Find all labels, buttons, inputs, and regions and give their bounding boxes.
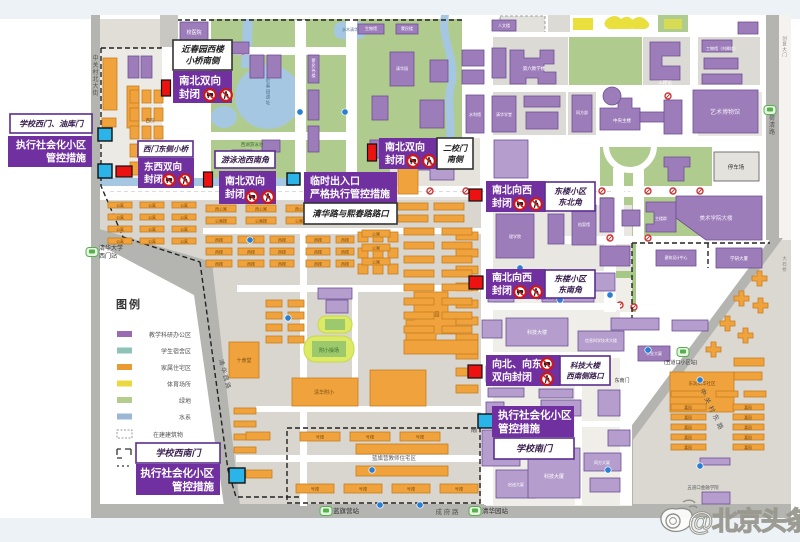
svg-text:意: 意 [782, 41, 787, 47]
svg-text:嘉园: 嘉园 [744, 415, 752, 420]
svg-text:附小操场: 附小操场 [319, 347, 339, 354]
svg-text:号楼: 号楼 [366, 434, 374, 441]
svg-text:(五道口小区站): (五道口小区站) [664, 359, 698, 366]
svg-text:科技大楼: 科技大楼 [570, 361, 601, 370]
svg-text:学生宿舍区: 学生宿舍区 [161, 348, 191, 356]
svg-text:清华学堂: 清华学堂 [496, 111, 512, 117]
svg-text:村: 村 [92, 68, 98, 76]
svg-text:启迪大厦: 启迪大厦 [508, 481, 524, 487]
svg-text:公寓楼: 公寓楼 [255, 218, 267, 224]
svg-text:向北、向东: 向北、向东 [492, 358, 542, 371]
svg-text:公寓: 公寓 [148, 203, 156, 208]
svg-text:号楼: 号楼 [455, 486, 463, 493]
svg-text:嘉园: 嘉园 [744, 435, 752, 440]
svg-text:体育场所: 体育场所 [167, 381, 191, 389]
svg-text:公寓: 公寓 [116, 215, 124, 220]
svg-text:家属住宅区: 家属住宅区 [161, 364, 191, 372]
svg-text:封闭: 封闭 [492, 284, 512, 297]
svg-text:绿地: 绿地 [179, 397, 191, 405]
svg-text:南北双向: 南北双向 [225, 175, 265, 188]
svg-text:艺术博物馆: 艺术博物馆 [710, 108, 740, 116]
svg-text:东南门: 东南门 [614, 377, 629, 384]
svg-text:主楼群: 主楼群 [655, 215, 667, 221]
svg-text:科技大厦: 科技大厦 [544, 473, 564, 480]
svg-text:西楼: 西楼 [215, 261, 223, 267]
svg-text:清华园: 清华园 [396, 65, 408, 71]
svg-text:第六教学楼: 第六教学楼 [523, 65, 546, 72]
svg-text:西院: 西院 [146, 117, 155, 124]
svg-text:公寓: 公寓 [116, 203, 124, 208]
svg-text:执行社会化小区: 执行社会化小区 [141, 466, 215, 479]
svg-text:东楼小区: 东楼小区 [554, 274, 588, 283]
svg-text:蒙民楼: 蒙民楼 [401, 25, 413, 31]
svg-text:南北双向: 南北双向 [385, 141, 425, 154]
svg-text:学校西门、油库门: 学校西门、油库门 [19, 118, 85, 128]
svg-text:西楼: 西楼 [215, 249, 223, 255]
svg-text:西楼: 西楼 [215, 237, 223, 243]
svg-text:大: 大 [92, 82, 98, 90]
svg-text:公寓: 公寓 [180, 239, 188, 244]
svg-text:号楼: 号楼 [416, 434, 424, 441]
svg-text:公寓: 公寓 [372, 259, 380, 265]
svg-text:人文楼: 人文楼 [498, 22, 510, 28]
svg-text:执行社会化小区: 执行社会化小区 [498, 408, 572, 421]
svg-text:嘉园: 嘉园 [684, 435, 692, 440]
svg-text:楼: 楼 [312, 72, 316, 78]
svg-text:公寓: 公寓 [372, 245, 380, 251]
svg-text:蓝旗营教师住宅区: 蓝旗营教师住宅区 [372, 454, 417, 462]
svg-text:清: 清 [769, 121, 775, 129]
svg-text:西公寓: 西公寓 [255, 206, 267, 212]
svg-text:址: 址 [266, 99, 271, 105]
svg-text:西门东侧小桥: 西门东侧小桥 [143, 145, 189, 154]
svg-text:嘉园: 嘉园 [684, 415, 692, 420]
svg-text:教学科研办公区: 教学科研办公区 [149, 331, 191, 339]
svg-text:科技大楼: 科技大楼 [527, 329, 547, 336]
svg-text:西楼: 西楼 [341, 249, 349, 255]
svg-text:严格执行管控措施: 严格执行管控措施 [309, 188, 390, 201]
svg-text:公寓: 公寓 [148, 239, 156, 244]
svg-text:号楼: 号楼 [359, 486, 367, 493]
svg-text:嘉园: 嘉园 [684, 425, 692, 430]
svg-text:十食堂: 十食堂 [236, 357, 251, 364]
svg-text:西楼: 西楼 [247, 261, 255, 267]
svg-text:公寓: 公寓 [180, 215, 188, 220]
svg-text:美术学院大楼: 美术学院大楼 [699, 214, 733, 222]
svg-text:封闭: 封闭 [492, 197, 512, 210]
svg-text:街: 街 [92, 89, 98, 97]
svg-text:执行社会化小区: 执行社会化小区 [16, 139, 86, 152]
svg-text:双向封闭: 双向封闭 [492, 371, 532, 384]
svg-text:成 府 路: 成 府 路 [435, 507, 459, 516]
svg-text:校医院: 校医院 [186, 29, 201, 36]
svg-text:档案馆: 档案馆 [578, 221, 590, 227]
svg-text:中央主楼: 中央主楼 [613, 117, 631, 124]
svg-text:嘉园: 嘉园 [744, 445, 752, 450]
svg-text:西楼: 西楼 [341, 261, 349, 267]
svg-text:水系: 水系 [179, 414, 191, 422]
svg-text:公寓: 公寓 [116, 239, 124, 244]
svg-text:西湖游泳池: 西湖游泳池 [241, 141, 264, 148]
svg-text:二校门: 二校门 [443, 144, 469, 153]
svg-text:封闭: 封闭 [144, 174, 163, 186]
svg-text:管控措施: 管控措施 [498, 422, 540, 435]
svg-text:西南侧路口: 西南侧路口 [566, 371, 605, 380]
svg-text:西楼: 西楼 [278, 237, 286, 243]
svg-text:生物馆: 生物馆 [365, 25, 377, 31]
svg-text:东北角: 东北角 [558, 198, 583, 207]
svg-text:北: 北 [92, 75, 98, 83]
svg-text:西楼: 西楼 [341, 237, 349, 243]
svg-text:清华路与熙春路路口: 清华路与熙春路路口 [312, 208, 390, 218]
svg-text:嘉园: 嘉园 [744, 405, 752, 410]
svg-text:图例: 图例 [116, 297, 142, 311]
svg-text:东西双向: 东西双向 [144, 161, 182, 173]
svg-text:清华园站: 清华园站 [482, 506, 509, 515]
svg-text:停车场: 停车场 [728, 163, 745, 171]
svg-text:小桥南侧: 小桥南侧 [185, 56, 221, 66]
svg-text:建筑设计中心: 建筑设计中心 [665, 255, 688, 260]
svg-text:西楼: 西楼 [278, 261, 286, 267]
svg-text:蓝旗营站: 蓝旗营站 [333, 506, 360, 515]
svg-text:西楼: 西楼 [247, 249, 255, 255]
svg-text:路: 路 [769, 128, 775, 136]
svg-text:清华大学: 清华大学 [99, 244, 123, 252]
svg-text:信息科学技术大楼: 信息科学技术大楼 [585, 337, 617, 343]
svg-text:关: 关 [92, 61, 98, 69]
svg-text:南北双向: 南北双向 [179, 74, 221, 87]
svg-text:公寓: 公寓 [148, 227, 156, 232]
svg-text:管控措施: 管控措施 [46, 152, 86, 165]
svg-text:西楼: 西楼 [314, 261, 322, 267]
svg-text:嘉园: 嘉园 [684, 445, 692, 450]
svg-text:西门站: 西门站 [99, 252, 117, 260]
svg-text:公寓: 公寓 [148, 215, 156, 220]
svg-text:学校南门: 学校南门 [516, 444, 554, 454]
svg-text:学研大厦: 学研大厦 [730, 255, 748, 262]
svg-text:西楼: 西楼 [278, 249, 286, 255]
svg-text:南北向西: 南北向西 [492, 271, 532, 284]
svg-text:同方大厦: 同方大厦 [594, 459, 610, 465]
svg-text:号楼: 号楼 [407, 486, 415, 493]
svg-text:西楼: 西楼 [314, 249, 322, 255]
svg-text:学校西南门: 学校西南门 [155, 448, 202, 458]
svg-text:门: 门 [782, 52, 787, 59]
svg-text:公寓: 公寓 [372, 231, 380, 237]
svg-text:工程馆: 工程馆 [658, 79, 672, 86]
svg-text:@北京头条: @北京头条 [688, 506, 800, 536]
svg-text:号楼: 号楼 [316, 434, 324, 441]
svg-text:东南角: 东南角 [558, 285, 583, 294]
svg-text:西楼: 西楼 [314, 237, 322, 243]
svg-text:中: 中 [92, 54, 98, 62]
svg-text:公寓: 公寓 [180, 203, 188, 208]
svg-text:管控措施: 管控措施 [172, 480, 214, 493]
svg-text:嘉园: 嘉园 [744, 425, 752, 430]
svg-text:封闭: 封闭 [179, 87, 200, 100]
svg-text:公寓楼: 公寓楼 [215, 218, 227, 224]
svg-text:工物馆（刘卿楼）: 工物馆（刘卿楼） [706, 45, 738, 51]
svg-text:水木清华: 水木清华 [342, 26, 358, 32]
svg-text:同方部: 同方部 [576, 109, 588, 115]
svg-text:南侧: 南侧 [447, 155, 465, 164]
svg-text:公寓: 公寓 [180, 227, 188, 232]
svg-text:荷: 荷 [769, 114, 775, 122]
svg-text:东楼小区: 东楼小区 [554, 187, 588, 196]
svg-text:封闭: 封闭 [385, 154, 405, 167]
svg-text:公寓: 公寓 [116, 227, 124, 232]
svg-text:清华附小: 清华附小 [314, 389, 334, 396]
svg-text:理学院: 理学院 [509, 233, 521, 239]
svg-text:南北向西: 南北向西 [492, 184, 532, 197]
svg-text:号楼: 号楼 [311, 486, 319, 493]
svg-text:水利馆: 水利馆 [469, 111, 481, 117]
svg-text:西公寓: 西公寓 [215, 206, 227, 212]
svg-text:近春园西楼: 近春园西楼 [181, 44, 225, 54]
svg-text:封闭: 封闭 [225, 188, 245, 201]
svg-text:五道口金融学院: 五道口金融学院 [687, 484, 719, 491]
svg-text:桥: 桥 [782, 266, 787, 273]
svg-text:临时出入口: 临时出入口 [310, 175, 360, 188]
svg-text:在建建筑物: 在建建筑物 [153, 431, 183, 439]
svg-text:嘉园: 嘉园 [684, 405, 692, 410]
svg-text:游泳池西南角: 游泳池西南角 [221, 155, 270, 164]
